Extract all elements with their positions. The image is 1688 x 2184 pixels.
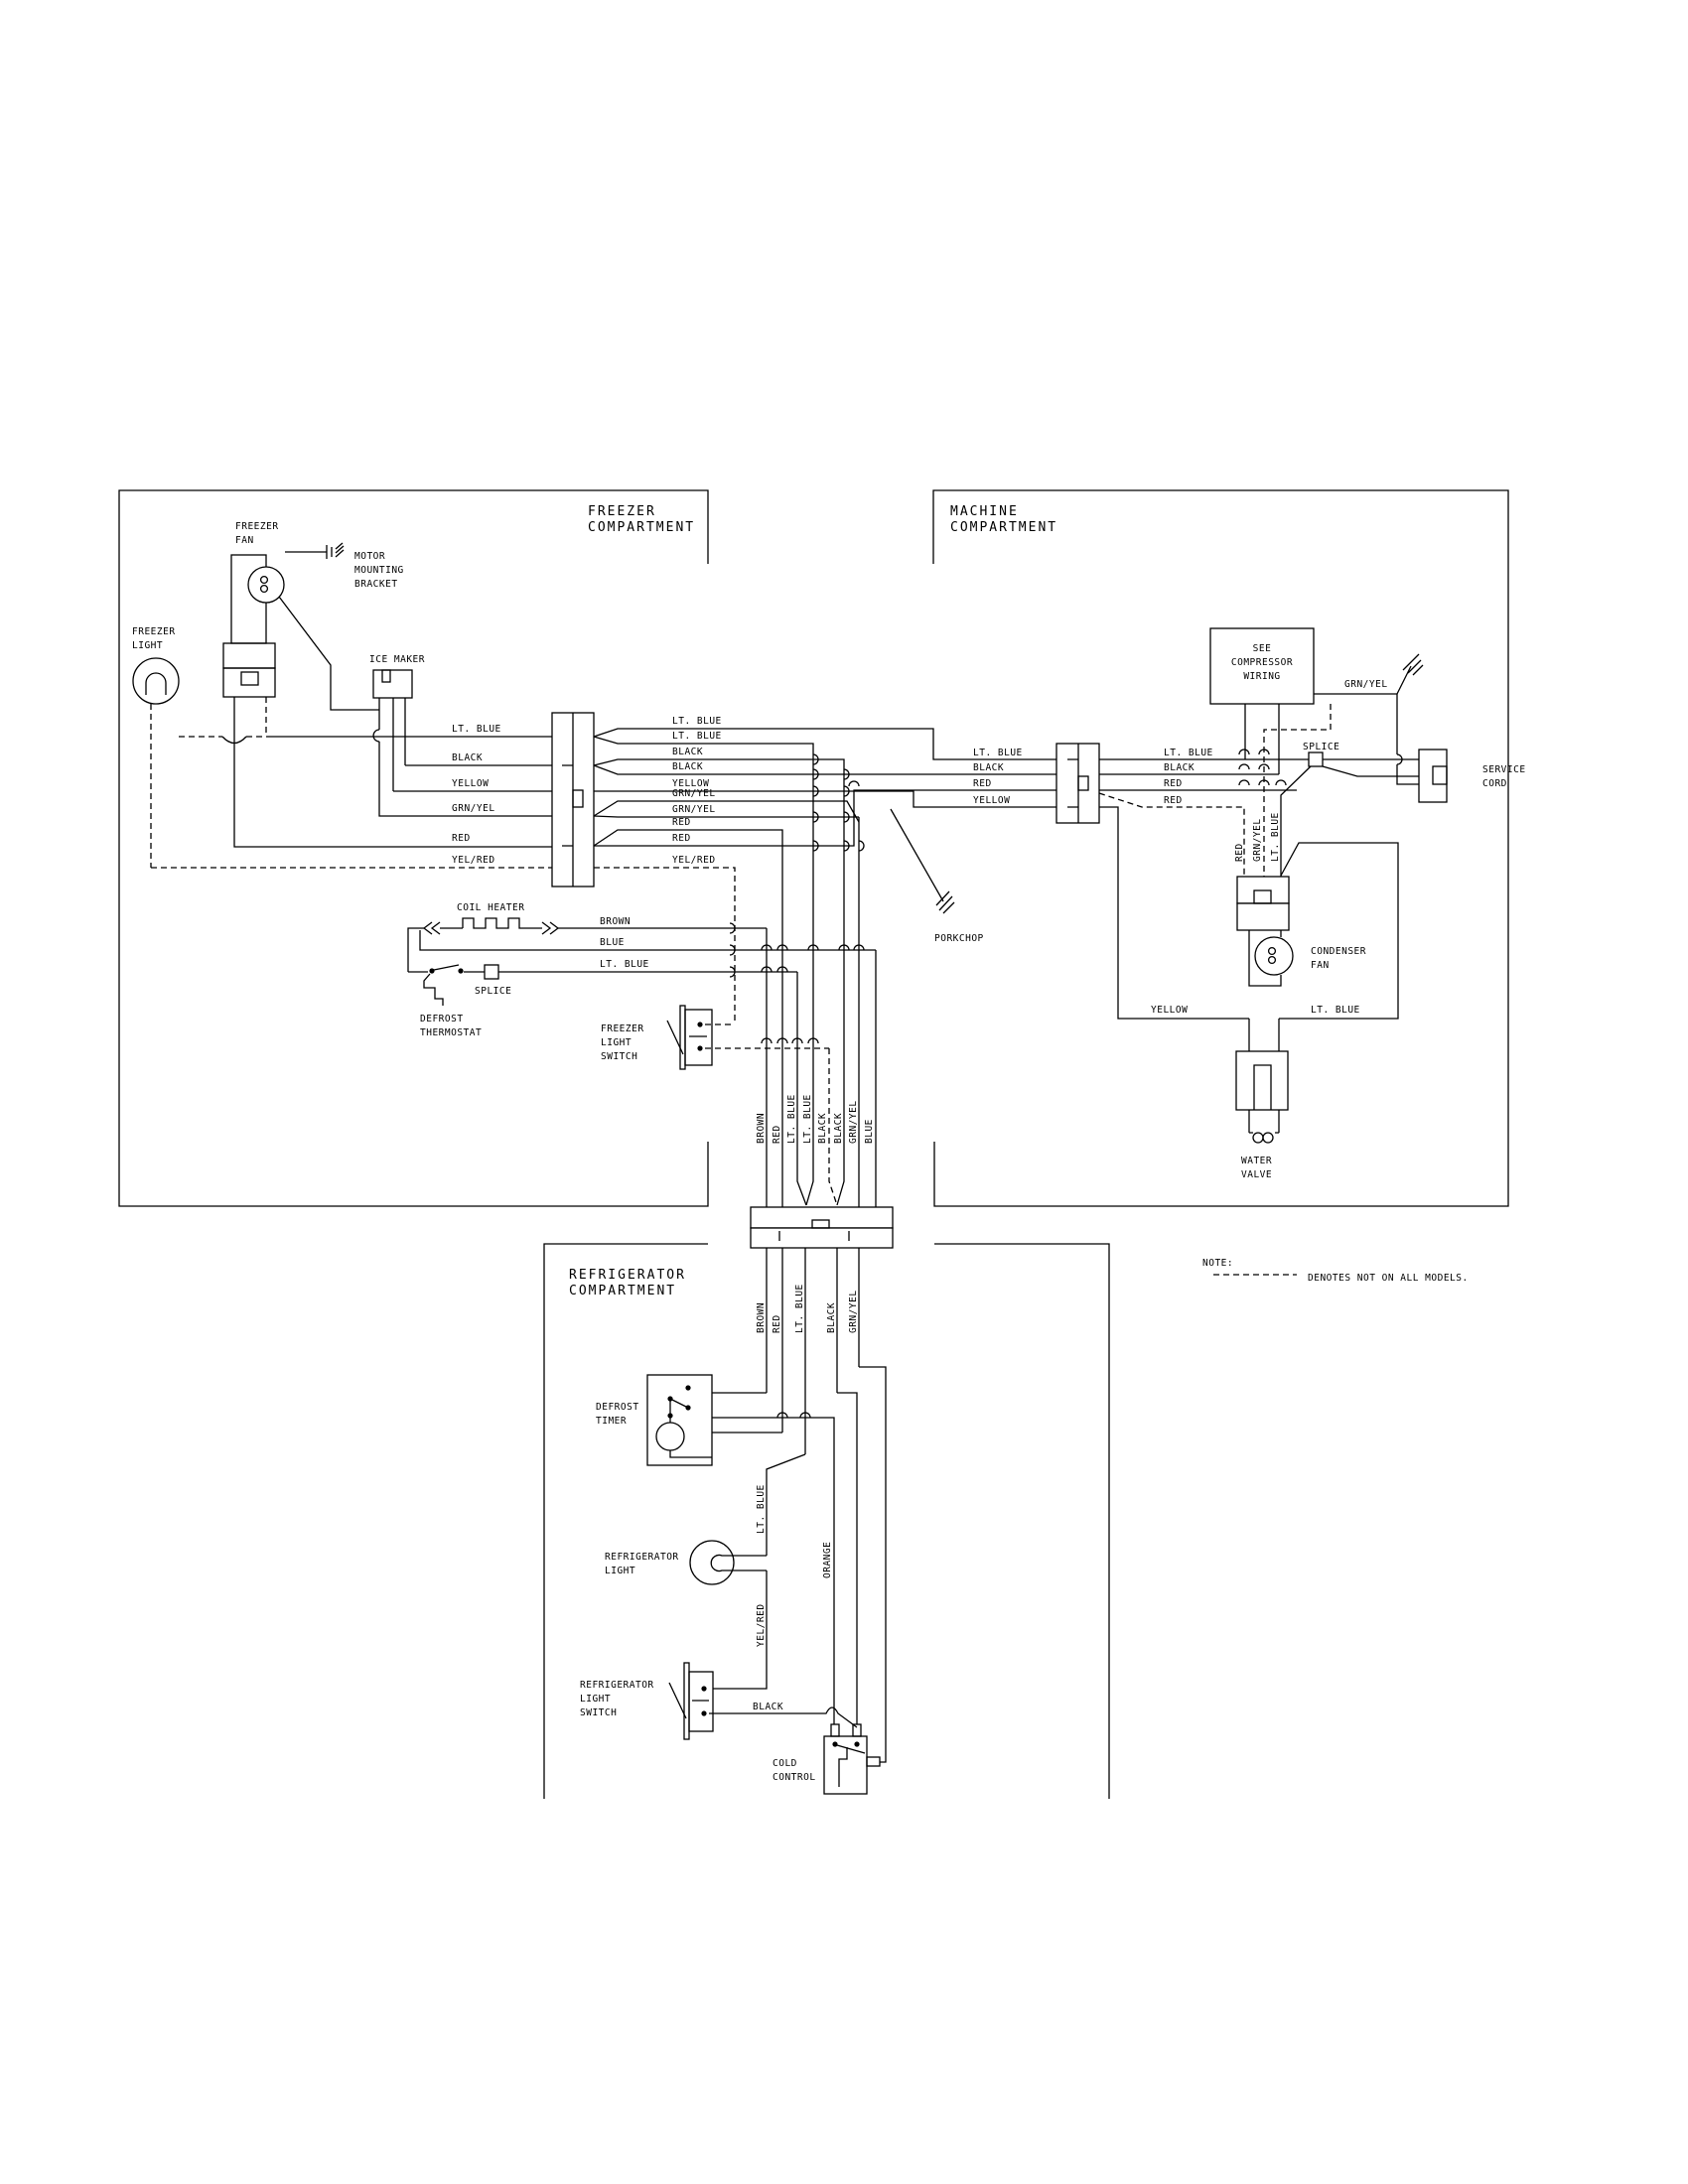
wire-label: LT. BLUE: [452, 724, 501, 735]
splice-machine-symbol: [1309, 752, 1323, 766]
wire-label: LT. BLUE: [756, 1484, 767, 1534]
note-title: NOTE:: [1202, 1258, 1233, 1269]
service-cord-label: SERVICE: [1482, 764, 1526, 775]
machine-compartment-title: MACHINE: [950, 504, 1019, 519]
wire-label: BROWN: [756, 1302, 767, 1333]
motor-mounting-bracket-label: BRACKET: [354, 579, 398, 590]
wire-label: GRN/YEL: [672, 804, 716, 815]
wire-label: RED: [1164, 795, 1183, 806]
wire-label: BLACK: [833, 1113, 844, 1144]
wire-label: BROWN: [600, 916, 631, 927]
wire-label: GRN/YEL: [1252, 818, 1263, 862]
wire-label: ORANGE: [822, 1542, 833, 1578]
refrigerator-light-switch-label: SWITCH: [580, 1707, 617, 1718]
refrigerator-compartment-title: COMPARTMENT: [569, 1284, 676, 1298]
wire-label: GRN/YEL: [1344, 679, 1388, 690]
compressor-label: COMPRESSOR: [1231, 657, 1293, 668]
freezer-connector: [552, 713, 594, 887]
wire-label: BLACK: [672, 761, 703, 772]
condenser-fan-label: FAN: [1311, 960, 1330, 971]
cold-control-label: COLD: [773, 1758, 797, 1769]
refrigerator-light-label: REFRIGERATOR: [605, 1552, 679, 1563]
wire-label: RED: [772, 1314, 782, 1333]
wire-label: RED: [973, 778, 992, 789]
condenser-fan-label: CONDENSER: [1311, 946, 1366, 957]
freezer-light-switch-label: LIGHT: [601, 1037, 632, 1048]
machine-compartment-border: [933, 490, 1508, 1206]
wire-label: LT. BLUE: [600, 959, 649, 970]
freezer-light-symbol: [133, 658, 552, 868]
wire-label: RED: [1164, 778, 1183, 789]
compressor-label: SEE: [1253, 643, 1272, 654]
refrigerator-light-switch-label: LIGHT: [580, 1694, 611, 1705]
porkchop-leader: [891, 809, 954, 913]
splice-label: SPLICE: [475, 986, 511, 997]
wiring-diagram: FREEZER COMPARTMENT MACHINE COMPARTMENT …: [0, 0, 1688, 2184]
cold-control-label: CONTROL: [773, 1772, 816, 1783]
defrost-timer-label: DEFROST: [596, 1402, 639, 1413]
ice-maker-symbol: [266, 670, 552, 816]
freezer-compartment-title: COMPARTMENT: [588, 520, 695, 535]
porkchop-label: PORKCHOP: [934, 933, 984, 944]
wire-label: BLUE: [864, 1119, 875, 1144]
machine-connector: [1056, 744, 1099, 823]
compressor-label: WIRING: [1243, 671, 1280, 682]
wire-label: YEL/RED: [452, 855, 495, 866]
service-cord-label: CORD: [1482, 778, 1507, 789]
schematic-canvas: FREEZER COMPARTMENT MACHINE COMPARTMENT …: [0, 0, 1688, 2184]
coil-heater-label: COIL HEATER: [457, 902, 524, 913]
wire-label: YEL/RED: [672, 855, 716, 866]
wire-label: LT. BLUE: [786, 1094, 797, 1144]
freezer-compartment-border: [119, 490, 708, 1206]
splice-label: SPLICE: [1303, 742, 1339, 752]
water-valve-symbol: [1236, 1019, 1288, 1143]
wire-label: GRN/YEL: [452, 803, 495, 814]
motor-mounting-bracket-label: MOUNTING: [354, 565, 404, 576]
wire-label: LT. BLUE: [973, 748, 1023, 758]
wire-label: RED: [1234, 843, 1245, 862]
wire-label: RED: [672, 833, 691, 844]
wire-label: BLUE: [600, 937, 625, 948]
wire-label: RED: [452, 833, 471, 844]
water-valve-label: WATER: [1241, 1156, 1272, 1166]
wire-label: LT. BLUE: [794, 1284, 805, 1333]
service-cord-symbol: [1419, 750, 1447, 802]
note-text: DENOTES NOT ON ALL MODELS.: [1308, 1273, 1469, 1284]
wire-label: GRN/YEL: [848, 1290, 859, 1333]
wire-label: BLACK: [1164, 762, 1195, 773]
machine-compartment-title: COMPARTMENT: [950, 520, 1057, 535]
ice-maker-label: ICE MAKER: [369, 654, 425, 665]
water-valve-label: VALVE: [1241, 1169, 1272, 1180]
wire-label: BLACK: [817, 1113, 828, 1144]
wire-label: YELLOW: [452, 778, 489, 789]
wire-label: LT. BLUE: [802, 1094, 813, 1144]
condenser-fan-symbol: [1237, 877, 1293, 986]
wire-label: LT. BLUE: [672, 716, 722, 727]
wire-label: RED: [772, 1125, 782, 1144]
freezer-light-label: FREEZER: [132, 626, 176, 637]
wire-label: LT. BLUE: [1164, 748, 1213, 758]
freezer-light-label: LIGHT: [132, 640, 163, 651]
wire-label: LT. BLUE: [1270, 812, 1281, 862]
wire-label: GRN/YEL: [848, 1100, 859, 1144]
defrost-thermostat-label: THERMOSTAT: [420, 1027, 482, 1038]
freezer-fan-label: FREEZER: [235, 521, 279, 532]
wire-label: YELLOW: [973, 795, 1010, 806]
wire-label: BROWN: [756, 1113, 767, 1144]
wire-label: GRN/YEL: [672, 788, 716, 799]
freezer-light-switch-label: SWITCH: [601, 1051, 637, 1062]
wire-label: BLACK: [672, 747, 703, 757]
wire-label: LT. BLUE: [1311, 1005, 1360, 1016]
cold-control-symbol: [824, 1724, 880, 1794]
freezer-compartment-title: FREEZER: [588, 504, 656, 519]
wire-label: RED: [672, 817, 691, 828]
motor-mounting-bracket-label: MOTOR: [354, 551, 385, 562]
freezer-fan-symbol: [223, 555, 552, 847]
wire-label: BLACK: [753, 1702, 783, 1712]
wire-label: YEL/RED: [756, 1603, 767, 1647]
defrost-timer-label: TIMER: [596, 1416, 627, 1427]
refrigerator-light-switch-label: REFRIGERATOR: [580, 1680, 654, 1691]
freezer-fan-label: FAN: [235, 535, 254, 546]
refrigerator-compartment-title: REFRIGERATOR: [569, 1268, 686, 1283]
refrigerator-light-label: LIGHT: [605, 1566, 635, 1576]
defrost-thermostat-label: DEFROST: [420, 1014, 464, 1024]
wire-label: LT. BLUE: [672, 731, 722, 742]
wire-label: BLACK: [452, 752, 483, 763]
freezer-light-switch-label: FREEZER: [601, 1024, 644, 1034]
wire-label: BLACK: [973, 762, 1004, 773]
wire-label: YELLOW: [1151, 1005, 1188, 1016]
bundle-connector: [751, 1207, 893, 1248]
defrost-timer-symbol: [647, 1375, 712, 1465]
wire-label: BLACK: [826, 1302, 837, 1333]
